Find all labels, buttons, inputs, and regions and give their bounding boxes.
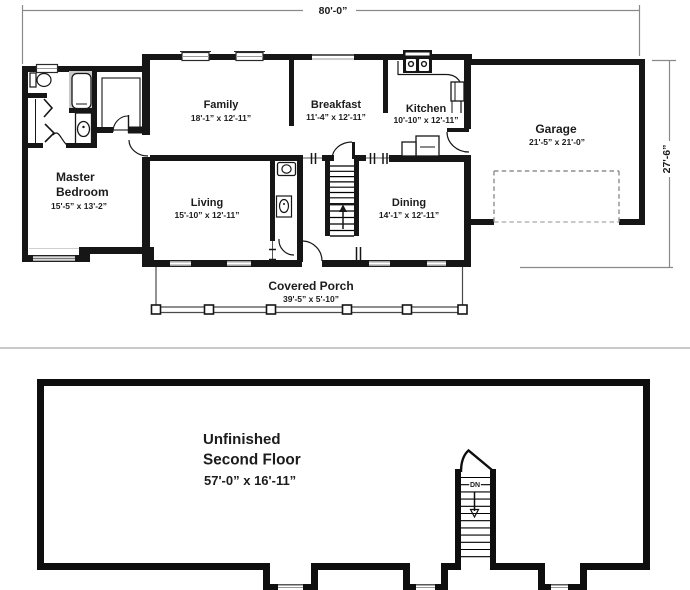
svg-text:21'-5” x 21'-0”: 21'-5” x 21'-0”: [529, 137, 585, 147]
svg-text:14'-1” x 12'-11”: 14'-1” x 12'-11”: [379, 210, 439, 220]
svg-text:39'-5” x 5'-10”: 39'-5” x 5'-10”: [283, 294, 339, 304]
svg-text:Covered Porch: Covered Porch: [268, 279, 353, 293]
svg-text:Family: Family: [204, 99, 240, 111]
svg-text:Unfinished: Unfinished: [203, 431, 281, 448]
svg-text:Dining: Dining: [392, 197, 426, 209]
svg-text:11'-4” x 12'-11”: 11'-4” x 12'-11”: [306, 112, 366, 122]
svg-text:Bedroom: Bedroom: [56, 185, 109, 199]
svg-text:10'-10” x 12'-11”: 10'-10” x 12'-11”: [393, 115, 458, 125]
svg-text:15'-5” x 13'-2”: 15'-5” x 13'-2”: [51, 201, 107, 211]
svg-text:Breakfast: Breakfast: [311, 99, 361, 111]
svg-text:Kitchen: Kitchen: [406, 103, 447, 115]
svg-text:DN: DN: [470, 482, 480, 489]
svg-text:15'-10” x 12'-11”: 15'-10” x 12'-11”: [174, 210, 239, 220]
svg-text:Second Floor: Second Floor: [203, 452, 301, 469]
svg-text:Master: Master: [56, 170, 95, 184]
svg-text:27'-6”: 27'-6”: [661, 145, 673, 174]
svg-text:Garage: Garage: [535, 122, 577, 136]
svg-text:80'-0”: 80'-0”: [319, 5, 348, 17]
svg-text:Living: Living: [191, 197, 223, 209]
svg-text:18'-1” x 12'-11”: 18'-1” x 12'-11”: [191, 113, 251, 123]
svg-text:57'-0” x 16'-11”: 57'-0” x 16'-11”: [204, 473, 296, 488]
